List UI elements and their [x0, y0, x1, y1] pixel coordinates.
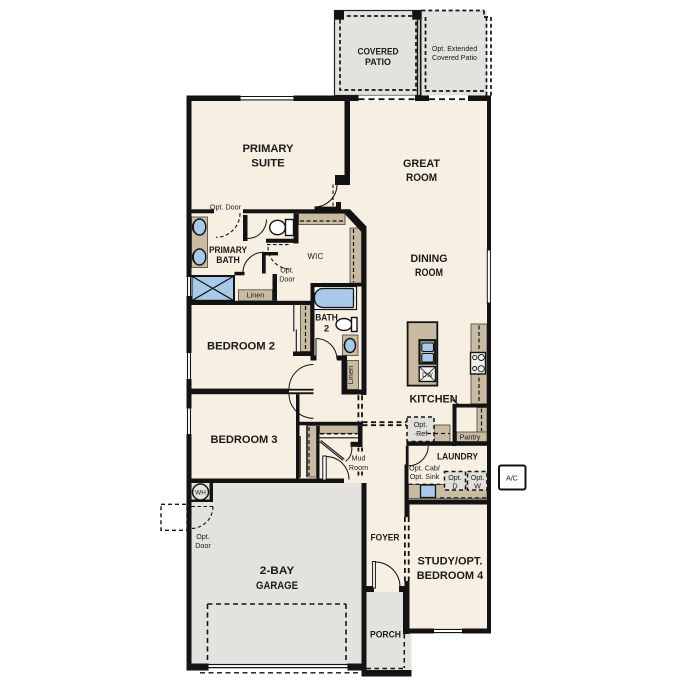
svg-text:Mud: Mud: [352, 454, 366, 463]
svg-text:Door: Door: [279, 275, 295, 284]
svg-text:Opt.: Opt.: [196, 532, 210, 541]
svg-text:BEDROOM 3: BEDROOM 3: [211, 434, 278, 446]
svg-text:2-BAY: 2-BAY: [260, 565, 295, 577]
svg-text:2: 2: [324, 323, 329, 334]
svg-text:Room: Room: [349, 463, 368, 472]
svg-text:DINING: DINING: [411, 253, 448, 265]
svg-text:Opt.: Opt.: [280, 266, 294, 275]
svg-text:WH: WH: [195, 490, 206, 497]
svg-text:SUITE: SUITE: [251, 158, 285, 170]
svg-text:Covered Patio: Covered Patio: [432, 54, 477, 62]
svg-text:FOYER: FOYER: [371, 532, 400, 543]
svg-text:BATH: BATH: [216, 255, 240, 266]
svg-text:Opt. Sink: Opt. Sink: [410, 472, 440, 481]
svg-text:W: W: [474, 481, 481, 490]
svg-text:Door: Door: [195, 541, 211, 550]
svg-text:D: D: [452, 481, 457, 490]
svg-text:KITCHEN: KITCHEN: [410, 393, 458, 405]
svg-text:DW: DW: [422, 372, 434, 379]
svg-text:STUDY/OPT.: STUDY/OPT.: [418, 556, 483, 568]
svg-text:GREAT: GREAT: [403, 158, 440, 170]
svg-text:Opt.: Opt.: [414, 420, 428, 429]
svg-text:Opt. Door: Opt. Door: [210, 203, 242, 212]
svg-text:BATH: BATH: [315, 312, 338, 323]
svg-text:Pantry: Pantry: [460, 432, 481, 441]
svg-text:PORCH: PORCH: [370, 630, 401, 641]
svg-text:PATIO: PATIO: [365, 57, 392, 68]
svg-text:Linen: Linen: [346, 366, 355, 384]
svg-text:ROOM: ROOM: [415, 267, 443, 279]
svg-text:Opt. Extended: Opt. Extended: [432, 45, 477, 53]
svg-text:WIC: WIC: [307, 252, 323, 261]
svg-text:A/C: A/C: [506, 475, 518, 482]
svg-text:GARAGE: GARAGE: [256, 580, 298, 592]
svg-text:ROOM: ROOM: [406, 172, 437, 184]
svg-text:LAUNDRY: LAUNDRY: [437, 451, 479, 462]
svg-text:·Ref: ·Ref: [414, 429, 428, 438]
svg-text:COVERED: COVERED: [358, 47, 399, 58]
svg-text:BEDROOM 2: BEDROOM 2: [207, 340, 275, 352]
svg-text:Linen: Linen: [247, 291, 265, 300]
svg-text:PRIMARY: PRIMARY: [243, 143, 294, 155]
svg-text:BEDROOM 4: BEDROOM 4: [417, 570, 484, 582]
